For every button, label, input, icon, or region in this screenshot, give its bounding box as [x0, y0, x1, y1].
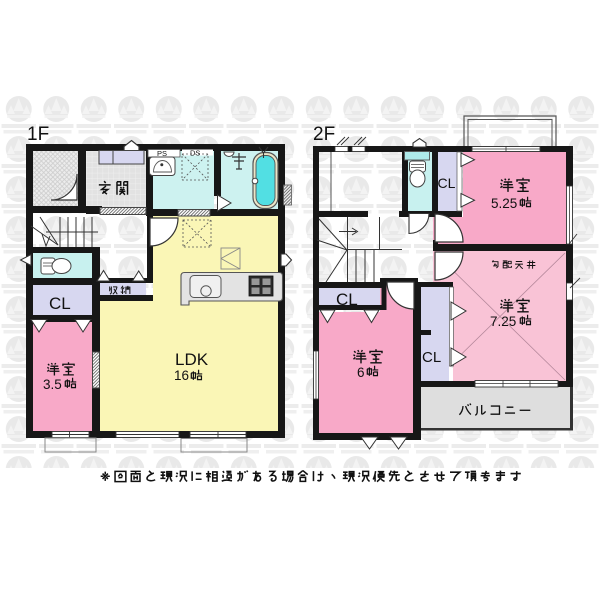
- svg-text:CL: CL: [422, 349, 441, 366]
- svg-text:1F: 1F: [27, 124, 49, 145]
- svg-text:CL: CL: [336, 290, 358, 309]
- svg-text:CL: CL: [49, 294, 71, 313]
- svg-text:7.25: 7.25: [490, 314, 516, 329]
- svg-text:CL: CL: [438, 175, 456, 191]
- svg-text:5.25: 5.25: [491, 196, 517, 211]
- svg-text:LDK: LDK: [175, 350, 209, 369]
- svg-text:2F: 2F: [313, 124, 335, 145]
- svg-text:16: 16: [174, 368, 189, 383]
- svg-text:DS: DS: [190, 149, 200, 158]
- svg-text:6: 6: [357, 365, 365, 380]
- svg-text:3.5: 3.5: [43, 377, 62, 392]
